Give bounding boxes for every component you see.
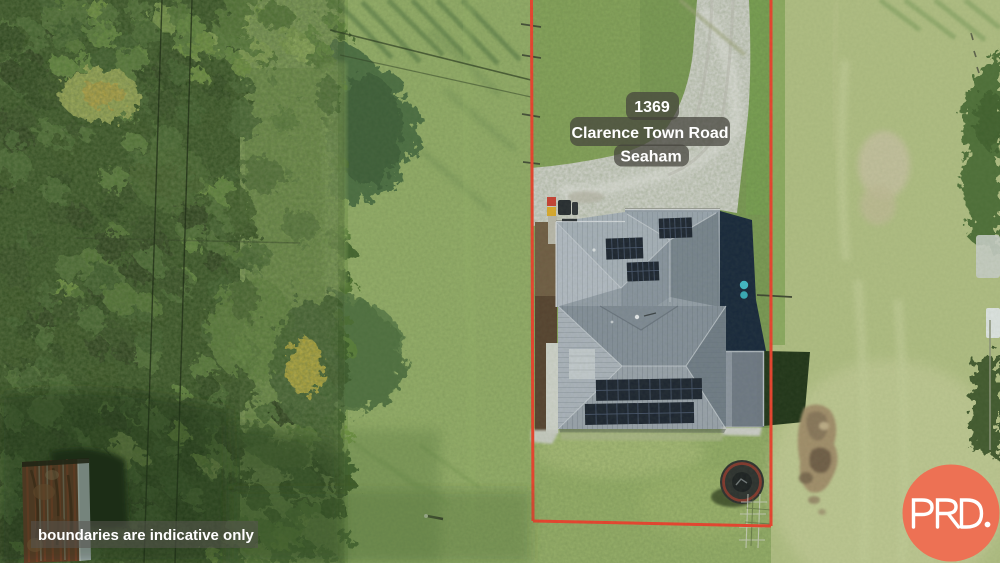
svg-text:boundaries are indicative only: boundaries are indicative only xyxy=(38,527,255,544)
svg-text:Clarence Town Road: Clarence Town Road xyxy=(571,125,728,142)
svg-text:Seaham: Seaham xyxy=(620,149,681,166)
svg-text:1369: 1369 xyxy=(634,99,670,116)
